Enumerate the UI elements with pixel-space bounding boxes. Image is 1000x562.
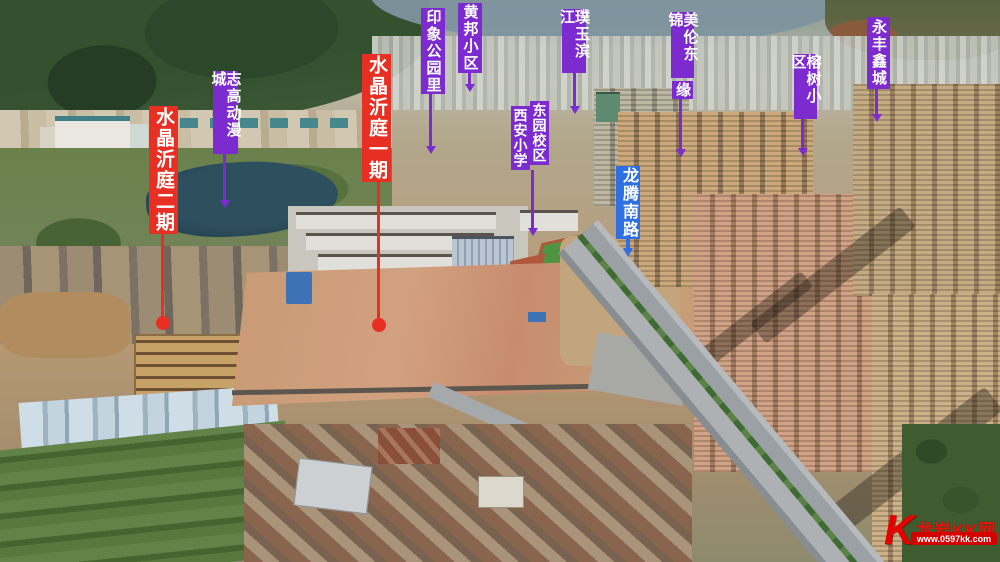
white-house-shape [478,476,524,508]
annotation-arrow-meilun [679,99,682,149]
annotated-aerial-photo: 水晶沂庭二期 志高动漫城 水晶沂庭一期 印象公园里 黄邦小区 璞玉滨江 东园校区… [0,0,1000,562]
meilun-label-top: 美伦东锦 [671,12,694,78]
arrow-head [623,248,633,257]
arrow-head [220,200,230,208]
kk-logo-icon: K [884,506,914,554]
blue-tarp-shape [528,312,546,322]
annotation-label-yongfeng: 永丰鑫城 [867,17,890,89]
blue-shed-shape [286,272,312,304]
annotation-label-shuijing-phase2: 水晶沂庭二期 [149,106,178,234]
arrow-head [798,148,808,156]
annotation-arrow-yongfeng [875,89,878,114]
arrow-head [528,228,538,236]
meilun-label-bottom: 缘 [672,81,693,99]
annotation-label-shuijing-phase1: 水晶沂庭一期 [362,54,391,182]
annotation-label-huangbang: 黄邦小区 [458,3,482,73]
watermark-url: www.0597kk.com [911,532,997,545]
annotation-arrow-shuijing-phase2 [161,234,164,318]
school-building-shape [296,212,496,229]
arrow-head [465,84,475,92]
annotation-label-yinxiang: 印象公园里 [421,8,445,94]
arrow-dot [156,316,170,330]
annotation-arrow-zhigao [223,154,226,200]
annotation-arrow-yinxiang [429,94,432,146]
annotation-label-longteng-road: 龙腾南路 [616,166,640,239]
teal-roofs-shape [150,118,350,128]
annotation-label-zhigao: 志高动漫城 [213,71,238,154]
annotation-arrow-shuijing-phase1 [377,182,380,320]
xian-school-column-left: 西安小学 [511,106,530,170]
dirt-patch-left-shape [0,292,130,358]
annotation-arrow-rongshu [801,119,804,148]
arrow-head [676,149,686,157]
brick-houses-shape [378,428,440,464]
green-glass-tower-shape [596,92,620,122]
annotation-arrow-xian-school [531,170,534,228]
arrow-dot [372,318,386,332]
arrow-head [570,106,580,114]
annotation-label-rongshu: 榕树小区 [794,54,817,119]
annotation-arrow-longteng-road [626,239,630,249]
arrow-head [426,146,436,154]
annotation-arrow-huangbang [468,73,471,84]
gray-roof-house-shape [293,458,372,515]
xian-school-column-right: 东园校区 [530,101,549,165]
annotation-label-puyu: 璞玉滨江 [562,9,586,73]
arrow-head [872,114,882,122]
annotation-arrow-puyu [573,73,576,106]
